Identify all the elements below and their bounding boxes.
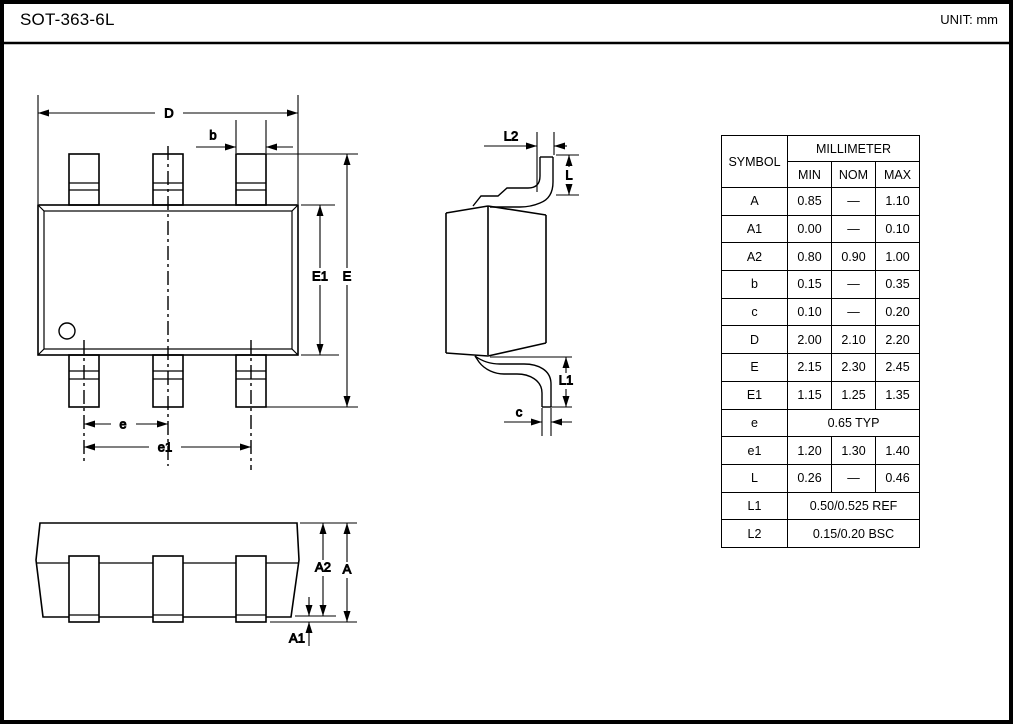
symbol-cell: L bbox=[722, 464, 788, 492]
nom-cell: — bbox=[832, 271, 876, 299]
table-header-unit: MILLIMETER bbox=[788, 136, 920, 162]
min-cell: 1.15 bbox=[788, 381, 832, 409]
table-row: E 2.15 2.30 2.45 bbox=[722, 354, 920, 382]
nom-cell: 0.90 bbox=[832, 243, 876, 271]
min-cell: 1.20 bbox=[788, 437, 832, 465]
table-row: L 0.26 — 0.46 bbox=[722, 464, 920, 492]
min-cell: 0.85 bbox=[788, 188, 832, 216]
dim-label-A: A bbox=[343, 561, 352, 576]
min-cell: 0.15 bbox=[788, 271, 832, 299]
symbol-cell: L1 bbox=[722, 492, 788, 520]
table-row: E1 1.15 1.25 1.35 bbox=[722, 381, 920, 409]
table-header-nom: NOM bbox=[832, 162, 876, 188]
symbol-cell: c bbox=[722, 298, 788, 326]
symbol-cell: A2 bbox=[722, 243, 788, 271]
min-cell: 2.15 bbox=[788, 354, 832, 382]
span-value-cell: 0.65 TYP bbox=[788, 409, 920, 437]
table-header-max: MAX bbox=[876, 162, 920, 188]
max-cell: 0.20 bbox=[876, 298, 920, 326]
nom-cell: — bbox=[832, 215, 876, 243]
min-cell: 0.26 bbox=[788, 464, 832, 492]
min-cell: 2.00 bbox=[788, 326, 832, 354]
min-cell: 0.80 bbox=[788, 243, 832, 271]
max-cell: 1.35 bbox=[876, 381, 920, 409]
max-cell: 2.20 bbox=[876, 326, 920, 354]
table-header-min: MIN bbox=[788, 162, 832, 188]
table-row: e1 1.20 1.30 1.40 bbox=[722, 437, 920, 465]
table-row: L2 0.15/0.20 BSC bbox=[722, 520, 920, 548]
dimension-L2 bbox=[484, 132, 567, 192]
nom-cell: — bbox=[832, 188, 876, 216]
table-row: A 0.85 — 1.10 bbox=[722, 188, 920, 216]
max-cell: 1.00 bbox=[876, 243, 920, 271]
symbol-cell: E bbox=[722, 354, 788, 382]
symbol-cell: A1 bbox=[722, 215, 788, 243]
nom-cell: — bbox=[832, 464, 876, 492]
nom-cell: 1.30 bbox=[832, 437, 876, 465]
dim-label-E1: E1 bbox=[312, 268, 328, 283]
symbol-cell: e1 bbox=[722, 437, 788, 465]
min-cell: 0.10 bbox=[788, 298, 832, 326]
pin1-indicator bbox=[59, 323, 75, 339]
dim-label-L: L bbox=[565, 167, 572, 182]
centerlines bbox=[84, 146, 251, 470]
dim-label-D: D bbox=[164, 105, 173, 120]
dim-label-L1: L1 bbox=[559, 372, 573, 387]
table-row: A2 0.80 0.90 1.00 bbox=[722, 243, 920, 271]
symbol-cell: e bbox=[722, 409, 788, 437]
table-header-symbol: SYMBOL bbox=[722, 136, 788, 188]
dim-label-b: b bbox=[209, 127, 216, 142]
max-cell: 2.45 bbox=[876, 354, 920, 382]
symbol-cell: A bbox=[722, 188, 788, 216]
table-row: e 0.65 TYP bbox=[722, 409, 920, 437]
symbol-cell: E1 bbox=[722, 381, 788, 409]
max-cell: 0.10 bbox=[876, 215, 920, 243]
symbol-cell: L2 bbox=[722, 520, 788, 548]
max-cell: 0.46 bbox=[876, 464, 920, 492]
span-value-cell: 0.50/0.525 REF bbox=[788, 492, 920, 520]
max-cell: 0.35 bbox=[876, 271, 920, 299]
nom-cell: 1.25 bbox=[832, 381, 876, 409]
dim-label-e1: e1 bbox=[158, 439, 172, 454]
nom-cell: 2.10 bbox=[832, 326, 876, 354]
package-body-side-view bbox=[446, 206, 546, 356]
dim-label-A1: A1 bbox=[289, 630, 305, 645]
symbol-cell: D bbox=[722, 326, 788, 354]
span-value-cell: 0.15/0.20 BSC bbox=[788, 520, 920, 548]
nom-cell: 2.30 bbox=[832, 354, 876, 382]
dim-label-L2: L2 bbox=[504, 128, 518, 143]
dim-label-A2: A2 bbox=[315, 559, 331, 574]
table-row: L1 0.50/0.525 REF bbox=[722, 492, 920, 520]
max-cell: 1.40 bbox=[876, 437, 920, 465]
package-outline-sheet: SOT-363-6L UNIT: mm bbox=[0, 0, 1013, 724]
dim-label-E: E bbox=[343, 268, 352, 283]
table-row: c 0.10 — 0.20 bbox=[722, 298, 920, 326]
side-view-drawing: L2 L L1 c bbox=[446, 128, 579, 436]
dimension-c bbox=[504, 408, 572, 436]
dim-label-e: e bbox=[119, 416, 126, 431]
dim-label-c: c bbox=[516, 404, 523, 419]
dimension-table: SYMBOL MILLIMETER MIN NOM MAX A 0.85 — 1… bbox=[721, 135, 919, 548]
max-cell: 1.10 bbox=[876, 188, 920, 216]
min-cell: 0.00 bbox=[788, 215, 832, 243]
upper-lead-side-view bbox=[473, 157, 553, 207]
table-row: A1 0.00 — 0.10 bbox=[722, 215, 920, 243]
table-row: D 2.00 2.10 2.20 bbox=[722, 326, 920, 354]
symbol-cell: b bbox=[722, 271, 788, 299]
nom-cell: — bbox=[832, 298, 876, 326]
table-row: b 0.15 — 0.35 bbox=[722, 271, 920, 299]
front-leads bbox=[69, 556, 266, 622]
lower-lead-side-view bbox=[475, 356, 551, 407]
top-view-drawing: D b E1 E bbox=[38, 95, 358, 470]
front-view-drawing: A2 A A1 bbox=[36, 523, 357, 646]
